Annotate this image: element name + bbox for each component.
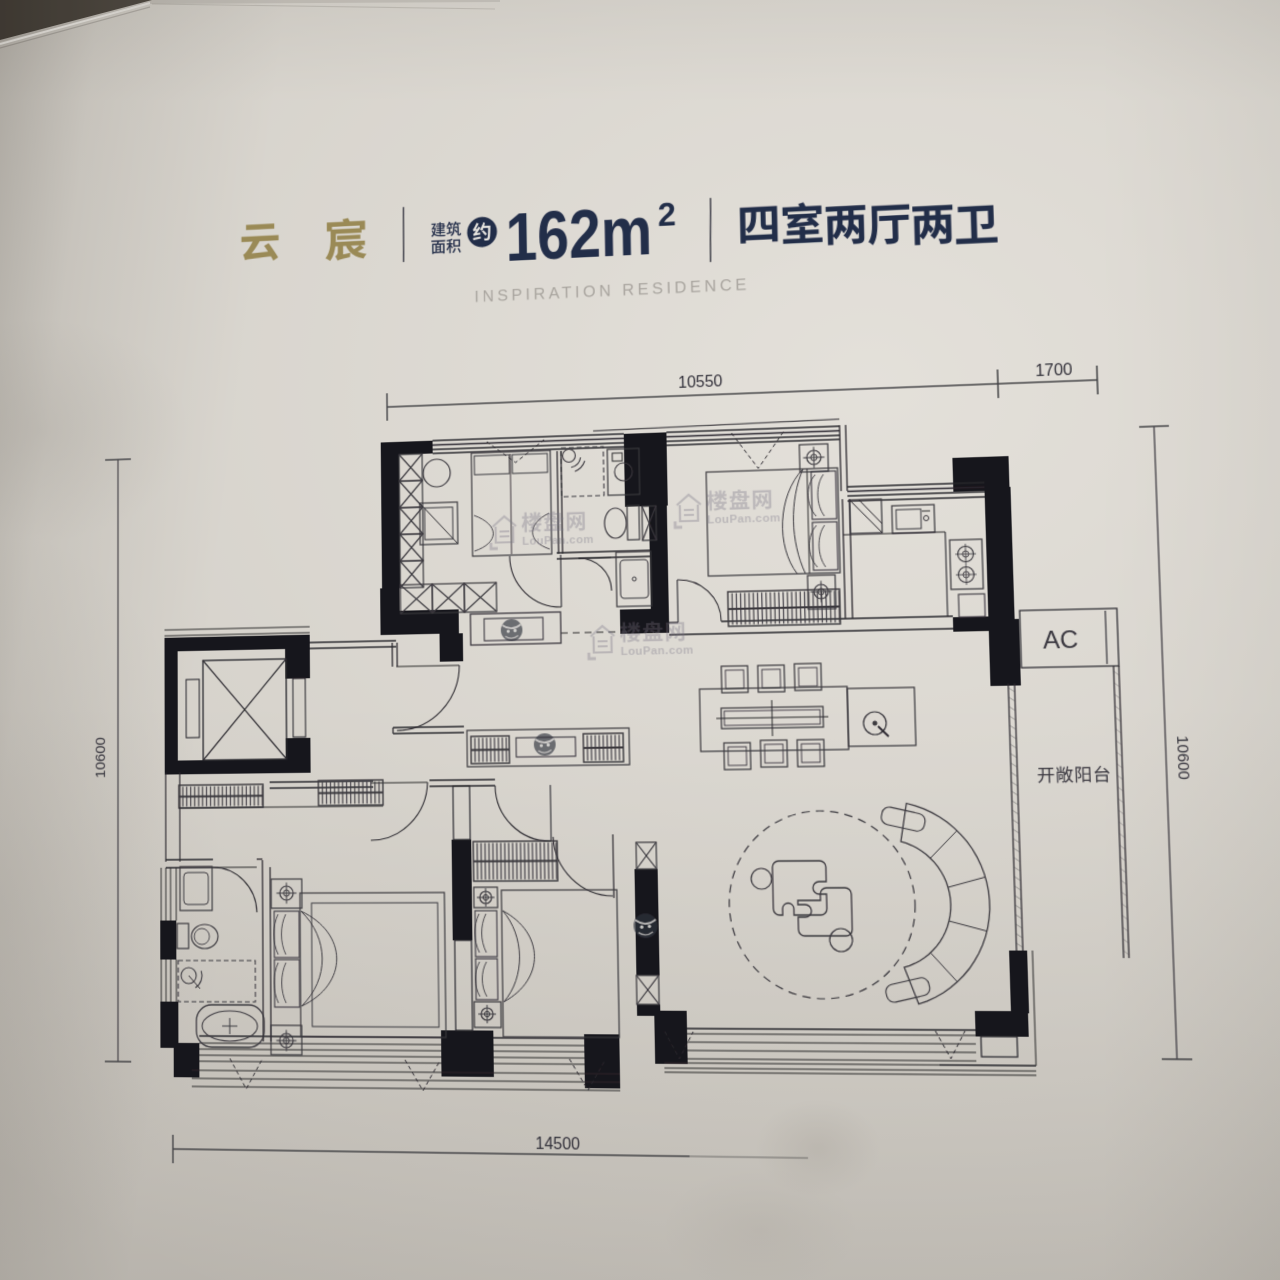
svg-text:10550: 10550: [678, 373, 723, 392]
svg-text:10600: 10600: [1174, 735, 1193, 780]
svg-text:AC: AC: [1043, 625, 1079, 654]
svg-text:LouPan.com: LouPan.com: [522, 534, 594, 548]
svg-text:14500: 14500: [535, 1135, 580, 1154]
svg-text:162m: 162m: [505, 191, 653, 276]
svg-text:2: 2: [657, 197, 676, 234]
svg-text:LouPan.com: LouPan.com: [707, 512, 781, 526]
svg-text:1700: 1700: [1035, 361, 1073, 380]
svg-text:INSPIRATION RESIDENCE: INSPIRATION RESIDENCE: [474, 276, 750, 307]
svg-text:10600: 10600: [93, 737, 108, 779]
svg-text:LouPan.com: LouPan.com: [621, 645, 694, 659]
